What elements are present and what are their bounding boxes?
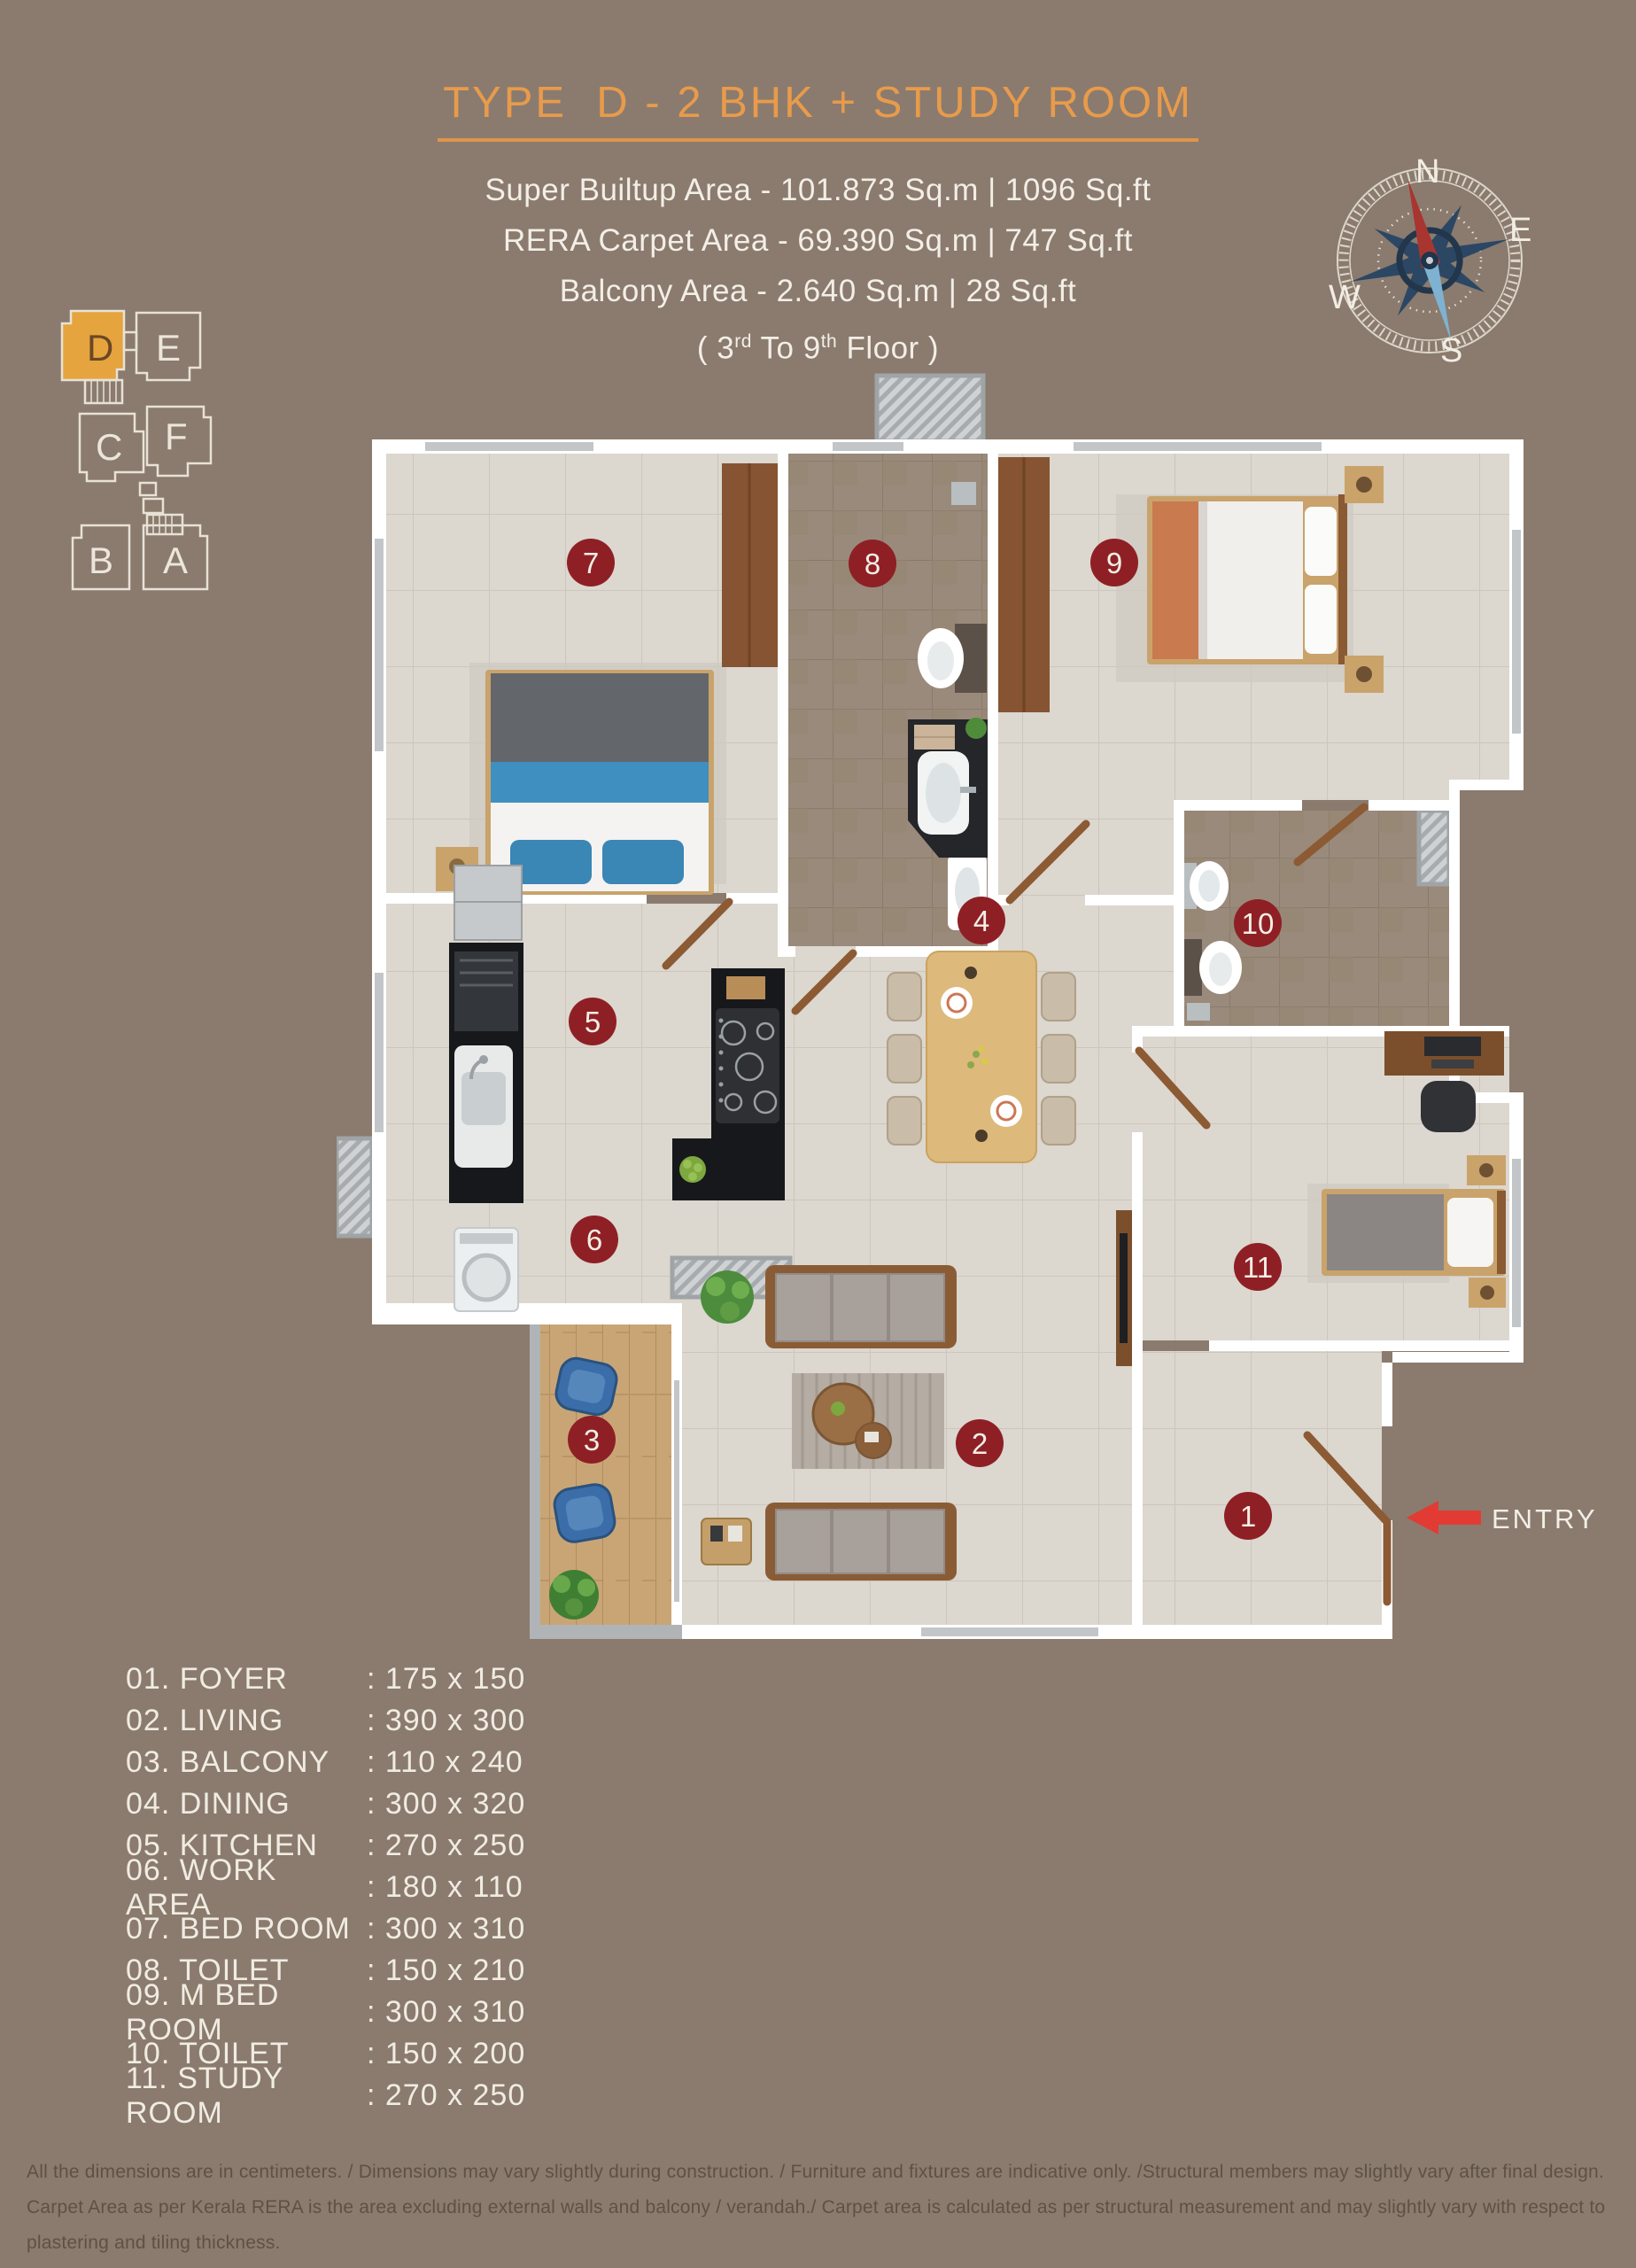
svg-text:7: 7 [583, 547, 599, 579]
compass-east-label: E [1509, 212, 1531, 249]
unit-d-label: D [87, 327, 113, 369]
svg-text:11: 11 [1243, 1251, 1273, 1284]
shower-mixer [951, 482, 976, 505]
unit-e-label: E [156, 327, 181, 369]
stairs-icon [85, 380, 122, 403]
compass-north-label: N [1415, 153, 1439, 190]
legend-row: 11. STUDY ROOM: 270 x 250 [126, 2075, 525, 2117]
side-table [702, 1518, 751, 1565]
badge-foyer: 1 [1224, 1492, 1272, 1540]
legend-row: 06. WORK AREA: 180 x 110 [126, 1867, 525, 1908]
badge-kitchen: 5 [569, 998, 616, 1045]
svg-text:8: 8 [865, 548, 880, 580]
floor-plan: ENTRY 1 2 3 4 5 6 7 8 9 10 11 [337, 361, 1636, 1648]
cutting-board [726, 976, 765, 999]
svg-text:4: 4 [973, 905, 989, 937]
legend-row: 03. BALCONY: 110 x 240 [126, 1742, 525, 1783]
svg-text:9: 9 [1106, 547, 1122, 579]
work-area-furniture [454, 1228, 518, 1311]
legend-row: 09. M BED ROOM: 300 x 310 [126, 1992, 525, 2033]
shower [1187, 1003, 1210, 1021]
monitor [1424, 1037, 1481, 1056]
badge-toilet8: 8 [849, 540, 896, 587]
page-title: TYPE D - 2 BHK + STUDY ROOM [438, 78, 1198, 142]
compass-rose: N E S W [1309, 124, 1548, 381]
svg-text:10: 10 [1242, 907, 1275, 940]
disclaimer-line1: All the dimensions are in centimeters. /… [27, 2155, 1621, 2190]
disclaimer: All the dimensions are in centimeters. /… [27, 2155, 1621, 2261]
pillow [1447, 1198, 1493, 1267]
badge-mbedroom: 9 [1090, 539, 1138, 586]
entry-marker: ENTRY [1407, 1501, 1598, 1534]
legend-row: 02. LIVING: 390 x 300 [126, 1700, 525, 1742]
unit-c-label: C [96, 426, 122, 468]
unit-b-label: B [89, 540, 113, 581]
foyer1-floor [1143, 1351, 1382, 1625]
plant-icon [965, 718, 987, 739]
entry-arrow-icon [1407, 1501, 1481, 1534]
svg-text:3: 3 [584, 1424, 600, 1456]
pillow [1305, 585, 1337, 654]
badge-balcony: 3 [568, 1416, 616, 1464]
dining-furniture [888, 951, 1075, 1162]
legend-row: 04. DINING: 300 x 320 [126, 1783, 525, 1825]
svg-text:5: 5 [585, 1006, 601, 1038]
compass-west-label: W [1329, 279, 1361, 316]
pillow [602, 840, 684, 884]
entry-label: ENTRY [1492, 1503, 1598, 1534]
office-chair [1421, 1081, 1476, 1132]
svg-text:1: 1 [1240, 1500, 1256, 1533]
unit-locator-key: D E C F B A [55, 297, 241, 594]
svg-text:6: 6 [586, 1223, 602, 1256]
legend-row: 07. BED ROOM: 300 x 310 [126, 1908, 525, 1950]
badge-study: 11 [1234, 1243, 1282, 1291]
badge-bedroom: 7 [567, 539, 615, 586]
badge-work-area: 6 [570, 1216, 618, 1263]
unit-a-label: A [163, 540, 188, 581]
pillow [1305, 507, 1337, 576]
tv-screen [1120, 1233, 1128, 1343]
legend-row: 01. FOYER: 175 x 150 [126, 1658, 525, 1700]
badge-dining: 4 [958, 897, 1005, 944]
disclaimer-line2: Carpet Area as per Kerala RERA is the ar… [27, 2190, 1621, 2261]
unit-f-label: F [165, 416, 188, 457]
svg-text:2: 2 [972, 1427, 988, 1460]
room-legend: 01. FOYER: 175 x 150 02. LIVING: 390 x 3… [126, 1658, 525, 2117]
badge-living: 2 [956, 1419, 1004, 1467]
badge-toilet10: 10 [1234, 899, 1282, 947]
bed-runner [1152, 501, 1198, 659]
